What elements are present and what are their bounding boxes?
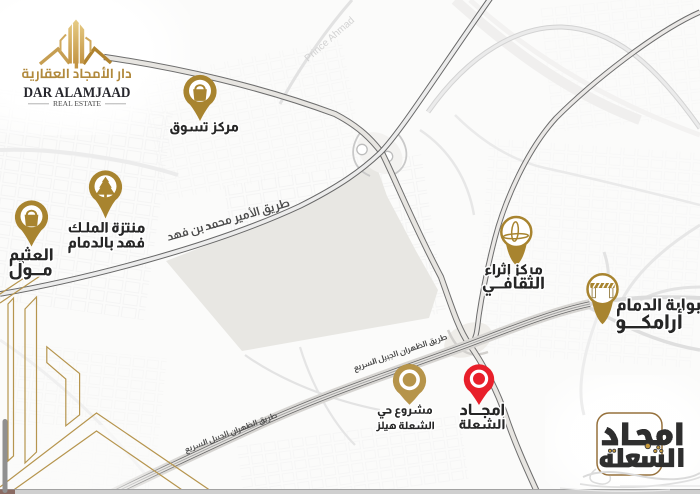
svg-text:REAL ESTATE: REAL ESTATE: [53, 101, 101, 108]
svg-text:DAR ALAMJAAD: DAR ALAMJAAD: [24, 85, 131, 101]
